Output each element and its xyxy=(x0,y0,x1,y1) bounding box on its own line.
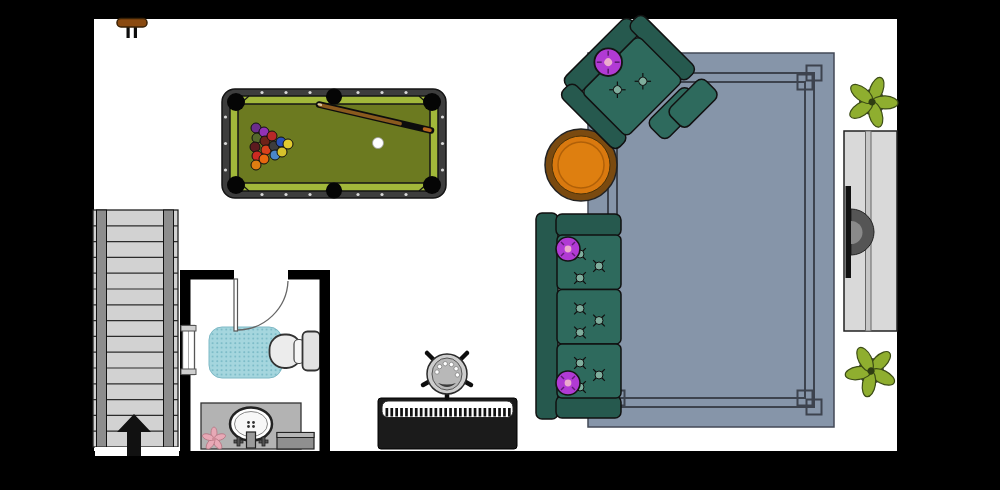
pool-ball xyxy=(267,131,277,141)
stairs[interactable] xyxy=(93,210,179,456)
sofa-cushion xyxy=(557,290,621,345)
waste-bin[interactable] xyxy=(277,433,314,450)
pool-ball xyxy=(259,154,269,164)
sofa-armrest-top xyxy=(556,214,621,236)
pool-table[interactable] xyxy=(222,89,446,199)
piano[interactable] xyxy=(378,398,517,449)
floor-plan xyxy=(0,0,1000,490)
toilet[interactable] xyxy=(270,332,321,371)
sofa-backrest xyxy=(536,213,558,419)
sofa-pillow-top xyxy=(556,237,580,261)
tv-screen xyxy=(846,186,852,278)
sofa-pillow-bottom xyxy=(556,371,580,395)
faucet xyxy=(247,432,256,448)
cue-ball xyxy=(373,138,384,149)
floor-plan-svg xyxy=(0,0,1000,490)
sofa[interactable] xyxy=(536,213,621,419)
window xyxy=(181,326,196,375)
pool-ball xyxy=(283,139,293,149)
pool-ball xyxy=(250,142,260,152)
sofa-armrest-bottom xyxy=(556,396,621,418)
